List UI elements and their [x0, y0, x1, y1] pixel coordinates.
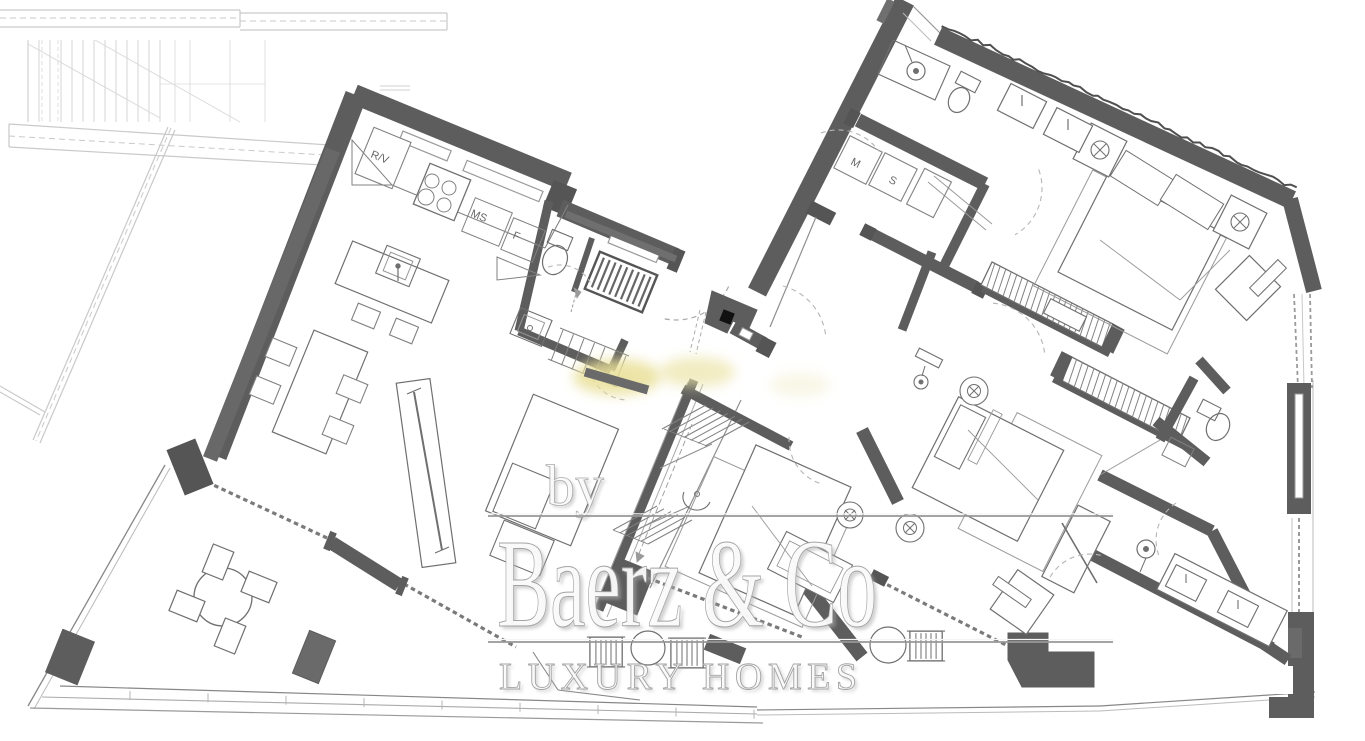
svg-text:by: by: [546, 453, 604, 518]
svg-text:LUXURY HOMES: LUXURY HOMES: [499, 656, 867, 698]
svg-text:Baerz & Co: Baerz & Co: [497, 515, 877, 654]
